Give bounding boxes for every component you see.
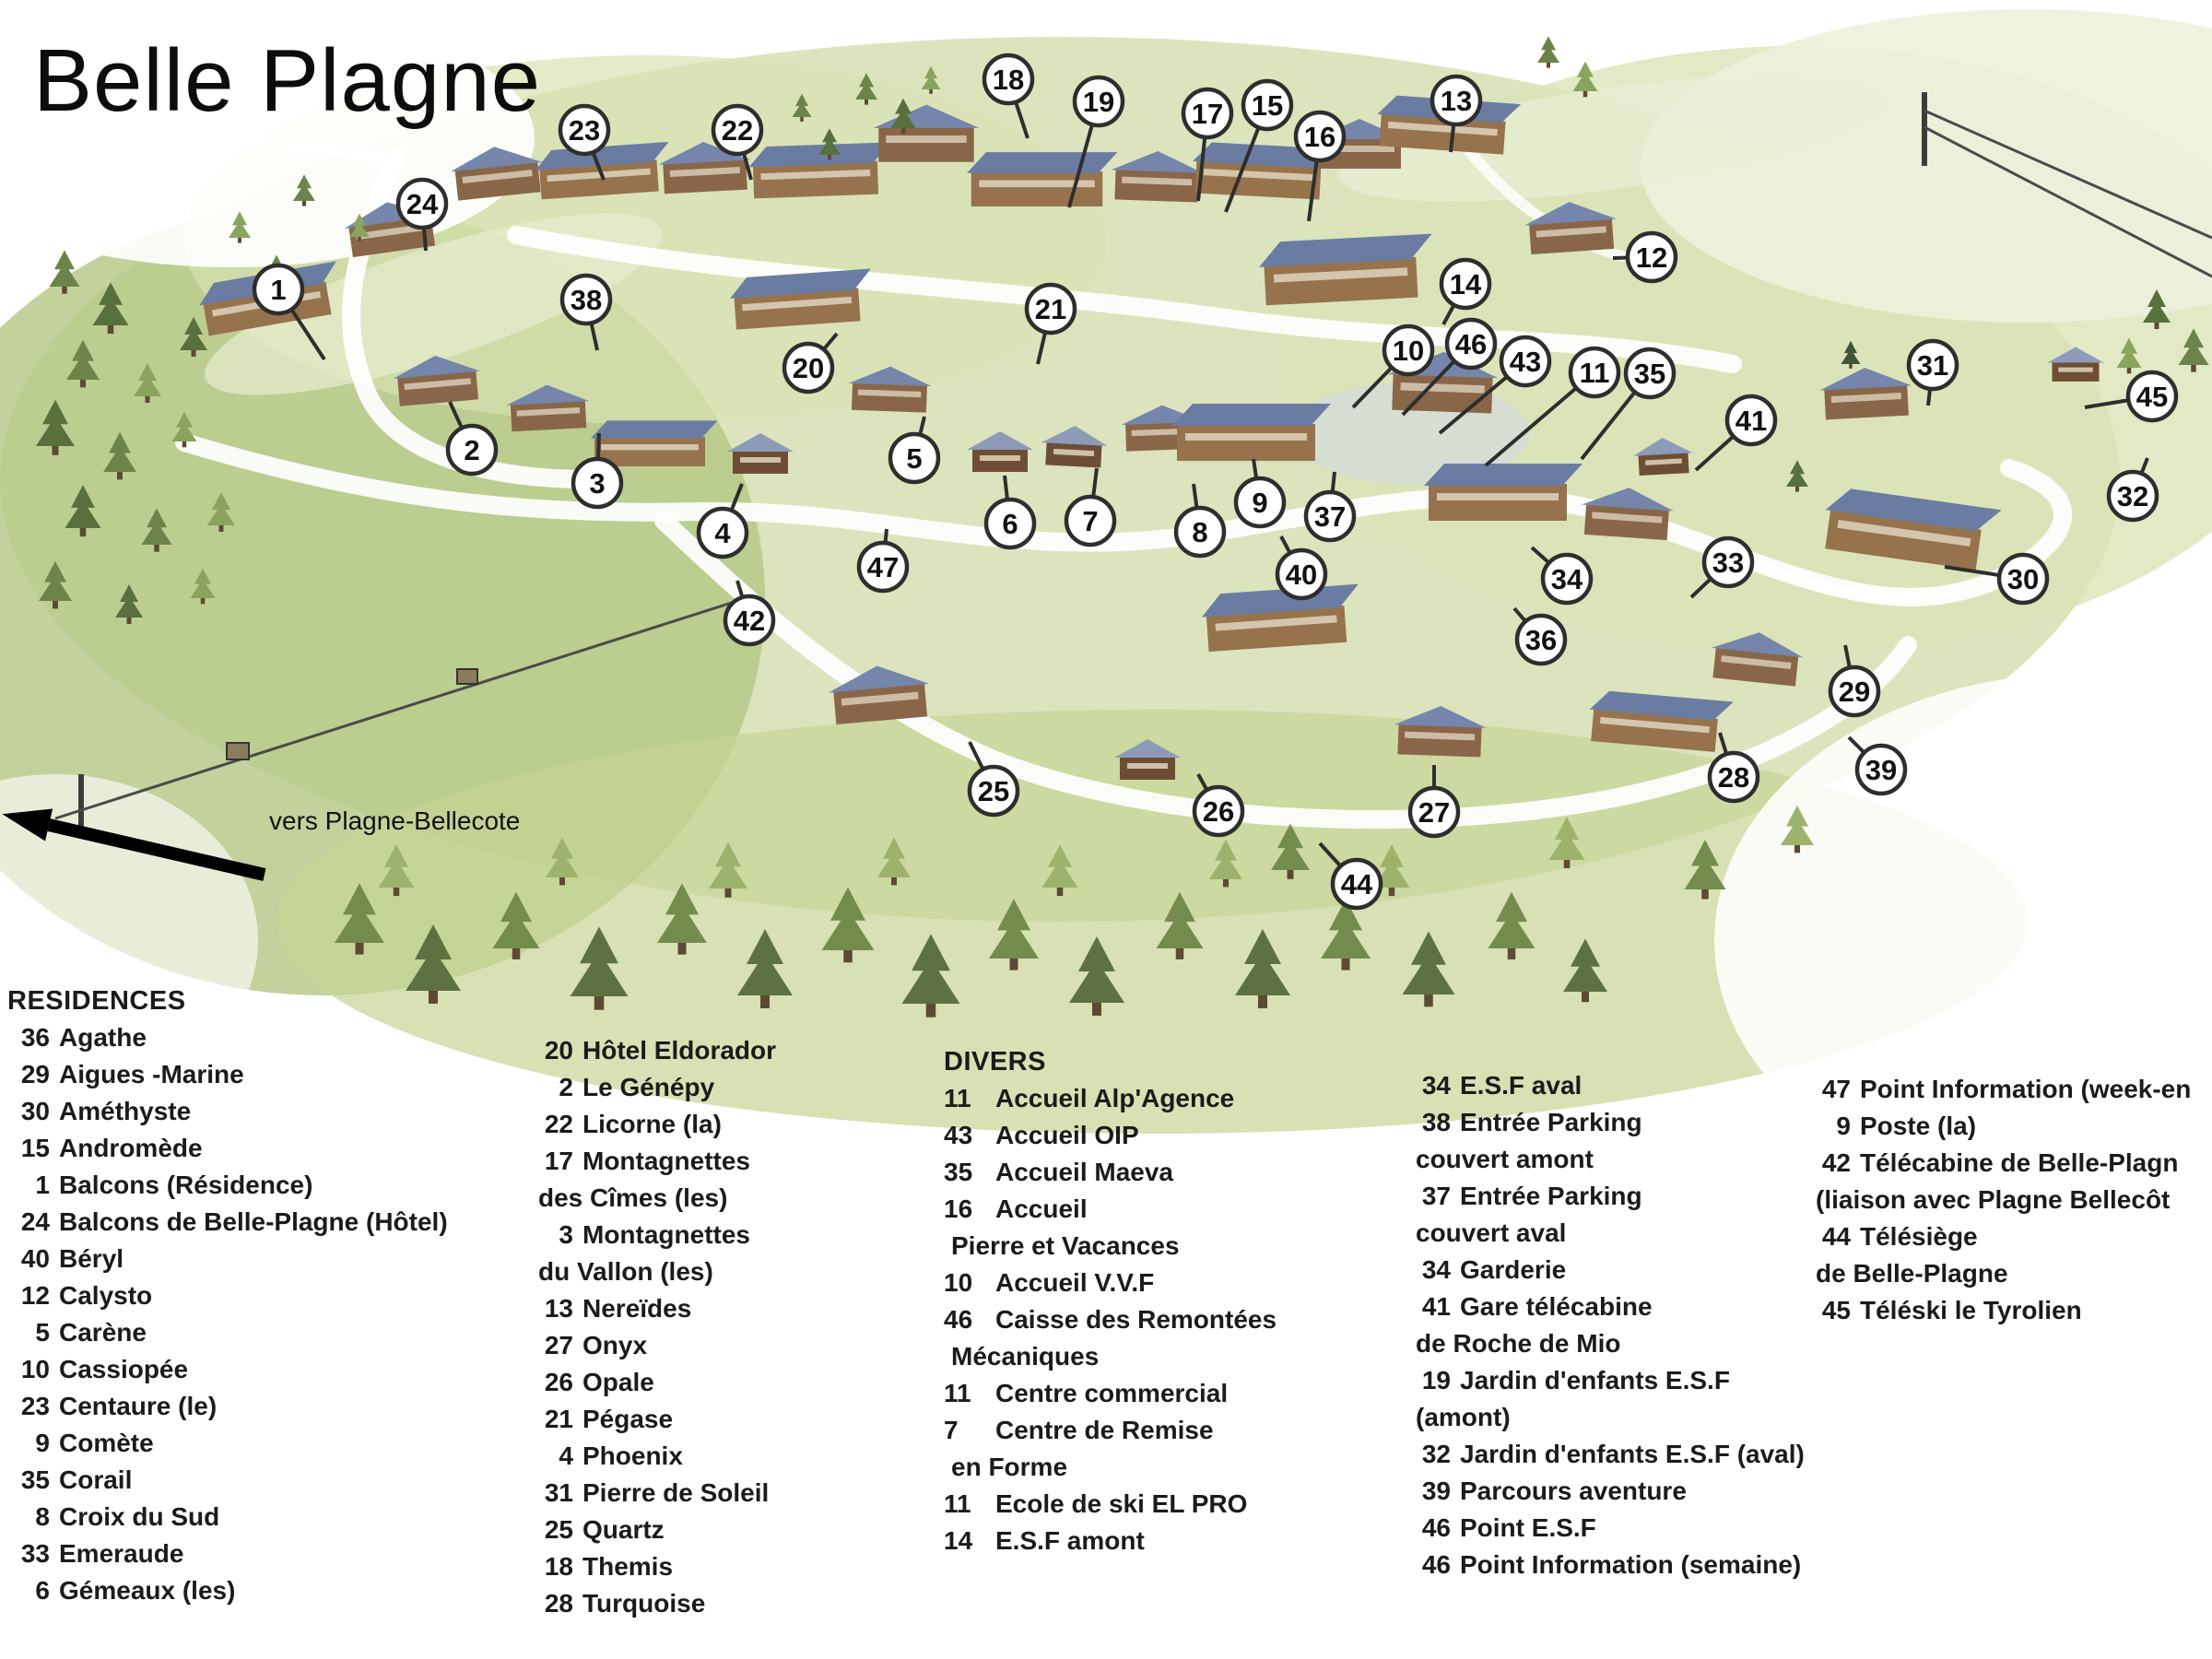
legend-item-label: Télécabine de Belle-Plagn [1860,1145,2212,1182]
legend-item: couvert amont [1408,1141,1841,1178]
legend-item: Pierre et Vacances [944,1228,1405,1265]
legend-item-number: 4 [531,1438,582,1475]
legend-item: 10Cassiopée [7,1351,524,1388]
legend-item-number: 47 [1808,1071,1860,1108]
legend-item-label: Croix du Sud [59,1499,524,1535]
legend-item: 45Téléski le Tyrolien [1808,1292,2212,1329]
legend-item: 28Turquoise [531,1585,941,1622]
legend-item: 15Andromède [7,1130,524,1167]
legend-item-label: Accueil Alp'Agence [995,1080,1405,1117]
legend-item-number: 25 [531,1512,582,1548]
legend-item-number: 32 [1408,1436,1460,1473]
legend-item: 22Licorne (la) [531,1106,941,1143]
legend-item-label: Andromède [59,1130,524,1167]
legend-item-number: 9 [1808,1108,1860,1145]
legend-item-label: Aigues -Marine [59,1056,524,1093]
legend-item-number: 8 [7,1499,59,1535]
legend-item-number: 42 [1808,1145,1860,1182]
legend-item: du Vallon (les) [531,1253,941,1290]
legend-item-number: 46 [944,1301,995,1338]
legend-column-divers: DIVERS 11Accueil Alp'Agence43Accueil OIP… [944,1043,1405,1559]
marker-number: 4 [714,517,731,549]
legend-item: en Forme [944,1449,1405,1486]
legend-list-residences: 36Agathe29Aigues -Marine30Améthyste15And… [7,1019,524,1609]
legend-item-label: Balcons de Belle-Plagne (Hôtel) [59,1204,524,1241]
legend-item: 29Aigues -Marine [7,1056,524,1093]
legend-item-label: Themis [582,1548,941,1585]
legend-item-label: Cassiopée [59,1351,524,1388]
legend-item-label: couvert aval [1408,1215,1841,1252]
arrow-label: vers Plagne-Bellecote [269,806,520,835]
legend-item: 37Entrée Parking [1408,1178,1841,1215]
legend-item-label: Gare télécabine [1460,1288,1841,1325]
marker-number: 19 [1083,86,1114,118]
legend-item-label: Garderie [1460,1252,1841,1288]
marker-number: 13 [1441,85,1472,117]
legend-item: 20Hôtel Eldorador [531,1032,941,1069]
legend-item: 23Centaure (le) [7,1388,524,1425]
legend-item-label: Pierre et Vacances [944,1228,1405,1265]
legend-item-number: 10 [944,1265,995,1301]
marker-number: 44 [1341,868,1373,900]
legend-list-divers-2: 34E.S.F aval38Entrée Parkingcouvert amon… [1408,1067,1841,1583]
legend-item-number: 39 [1408,1473,1460,1510]
legend-item-label: Téléski le Tyrolien [1860,1292,2212,1329]
marker-number: 38 [571,284,602,316]
marker-number: 12 [1636,241,1667,274]
legend-item-number: 41 [1408,1288,1460,1325]
legend-item-number: 11 [944,1080,995,1117]
marker-number: 18 [993,64,1024,96]
legend-item: 27Onyx [531,1327,941,1364]
legend-item-number: 7 [944,1412,995,1449]
marker-number: 32 [2117,480,2148,512]
legend-item-number: 31 [531,1475,582,1512]
legend-item-number: 38 [1408,1104,1460,1141]
legend-item: 21Pégase [531,1401,941,1438]
legend-item-label: Béryl [59,1241,524,1277]
legend-item-label: Montagnettes [582,1217,941,1253]
marker-number: 17 [1192,98,1223,130]
legend-item: 33Emeraude [7,1535,524,1572]
legend-list-residences-2: 20Hôtel Eldorador2Le Génépy22Licorne (la… [531,1032,941,1622]
marker-number: 45 [2136,381,2168,413]
legend-item-label: Nereïdes [582,1290,941,1327]
marker-number: 5 [906,442,922,475]
marker-number: 30 [2007,563,2039,595]
legend-item-label: Quartz [582,1512,941,1548]
legend-item-number: 17 [531,1143,582,1180]
legend-item-label: Point Information (semaine) [1460,1547,1841,1583]
marker-number: 25 [978,775,1009,807]
legend-item-number: 12 [7,1277,59,1314]
legend-item: 11Ecole de ski EL PRO [944,1486,1405,1523]
legend-item-number: 26 [531,1364,582,1401]
marker-number: 23 [569,114,600,147]
marker-number: 42 [734,605,765,637]
legend-column-divers-3: 47Point Information (week-en9Poste (la)4… [1808,1071,2212,1329]
legend-item: 18Themis [531,1548,941,1585]
legend-item-label: de Roche de Mio [1408,1325,1841,1362]
legend-header-divers: DIVERS [944,1043,1405,1080]
legend-item: 5Carène [7,1314,524,1351]
legend-item: des Cîmes (les) [531,1180,941,1217]
legend-item-number: 9 [7,1425,59,1462]
legend-item-label: couvert amont [1408,1141,1841,1178]
marker-number: 40 [1286,559,1317,591]
marker-number: 28 [1718,761,1749,794]
legend-item-number: 18 [531,1548,582,1585]
legend-item-label: Entrée Parking [1460,1178,1841,1215]
marker-number: 26 [1203,795,1234,828]
marker-number: 43 [1510,346,1541,378]
legend-item-label: du Vallon (les) [531,1253,941,1290]
legend-item: 31Pierre de Soleil [531,1475,941,1512]
legend-item-label: (liaison avec Plagne Bellecôt [1808,1182,2212,1218]
legend-item: 46Caisse des Remontées [944,1301,1405,1338]
legend-column-residences-2: 20Hôtel Eldorador2Le Génépy22Licorne (la… [531,1032,941,1622]
legend-item: Mécaniques [944,1338,1405,1375]
legend-item-number: 36 [7,1019,59,1056]
legend-item-label: Ecole de ski EL PRO [995,1486,1405,1523]
legend-item-label: Opale [582,1364,941,1401]
legend-item-label: Centre commercial [995,1375,1405,1412]
legend-list-divers-3: 47Point Information (week-en9Poste (la)4… [1808,1071,2212,1329]
legend-item: 9Poste (la) [1808,1108,2212,1145]
marker-number: 36 [1525,624,1557,656]
legend-item: 1Balcons (Résidence) [7,1167,524,1204]
legend-item-number: 46 [1408,1510,1460,1547]
legend-item: 17Montagnettes [531,1143,941,1180]
marker-number: 15 [1252,89,1283,122]
legend-item: 35Accueil Maeva [944,1154,1405,1191]
legend-item: 46Point E.S.F [1408,1510,1841,1547]
legend-item: 12Calysto [7,1277,524,1314]
legend-item-label: Turquoise [582,1585,941,1622]
legend-item-number: 43 [944,1117,995,1154]
legend-item-label: de Belle-Plagne [1808,1255,2212,1292]
legend-item: 34Garderie [1408,1252,1841,1288]
legend-item: 2Le Génépy [531,1069,941,1106]
legend-item: 38Entrée Parking [1408,1104,1841,1141]
legend-item-label: E.S.F aval [1460,1067,1841,1104]
legend-item-number: 35 [7,1462,59,1499]
marker-number: 27 [1418,796,1450,829]
legend-item-label: Gémeaux (les) [59,1572,524,1609]
legend-item-number: 21 [531,1401,582,1438]
legend-item-number: 29 [7,1056,59,1093]
legend-column-divers-2: 34E.S.F aval38Entrée Parkingcouvert amon… [1408,1067,1841,1583]
marker-number: 2 [464,434,479,466]
legend-item: 40Béryl [7,1241,524,1277]
marker-number: 41 [1735,405,1767,437]
legend-item-label: Accueil [995,1191,1405,1228]
legend-item-number: 1 [7,1167,59,1204]
legend-item: 8Croix du Sud [7,1499,524,1535]
legend-item: 25Quartz [531,1512,941,1548]
legend-item: 24Balcons de Belle-Plagne (Hôtel) [7,1204,524,1241]
marker-number: 10 [1393,335,1424,367]
legend-item-number: 11 [944,1486,995,1523]
legend-item-number: 28 [531,1585,582,1622]
legend-item: 14E.S.F amont [944,1523,1405,1559]
legend-item: 41Gare télécabine [1408,1288,1841,1325]
legend-item-label: Accueil V.V.F [995,1265,1405,1301]
marker-number: 34 [1551,563,1583,595]
legend-item: 16Accueil [944,1191,1405,1228]
legend-item-number: 20 [531,1032,582,1069]
marker-number: 8 [1192,516,1207,548]
legend-item-label: Onyx [582,1327,941,1364]
marker-number: 3 [589,467,605,500]
legend-item-number: 14 [944,1523,995,1559]
legend-item-label: Licorne (la) [582,1106,941,1143]
legend-item-label: Jardin d'enfants E.S.F [1460,1362,1841,1399]
legend-item-number: 35 [944,1154,995,1191]
legend-item-number: 23 [7,1388,59,1425]
marker-number: 35 [1634,358,1665,390]
legend-item-label: E.S.F amont [995,1523,1405,1559]
marker-number: 20 [793,352,824,384]
legend-item: 44Télésiège [1808,1218,2212,1255]
legend-item-label: Parcours aventure [1460,1473,1841,1510]
legend-item-number: 13 [531,1290,582,1327]
legend-item: de Roche de Mio [1408,1325,1841,1362]
legend-item-label: Caisse des Remontées [995,1301,1405,1338]
legend-item-number: 10 [7,1351,59,1388]
legend-item-label: Centre de Remise [995,1412,1405,1449]
marker-number: 1 [270,274,286,306]
marker-number: 31 [1917,349,1948,382]
legend-item-label: Pierre de Soleil [582,1475,941,1512]
legend-item: 47Point Information (week-en [1808,1071,2212,1108]
legend-item: 13Nereïdes [531,1290,941,1327]
legend-item-label: des Cîmes (les) [531,1180,941,1217]
legend-item-label: Poste (la) [1860,1108,2212,1145]
gondola-cabin-icon [227,743,249,759]
legend-item: 4Phoenix [531,1438,941,1475]
marker-number: 37 [1314,500,1346,533]
legend-item-number: 30 [7,1093,59,1130]
marker-number: 21 [1035,293,1066,325]
marker-number: 46 [1455,328,1487,360]
legend-item: (amont) [1408,1399,1841,1436]
legend-item-number: 34 [1408,1252,1460,1288]
legend-item: 34E.S.F aval [1408,1067,1841,1104]
gondola-cabin-icon [457,669,477,684]
legend-item: 32Jardin d'enfants E.S.F (aval) [1408,1436,1841,1473]
legend-item-label: Point Information (week-en [1860,1071,2212,1108]
legend-item-label: Balcons (Résidence) [59,1167,524,1204]
legend-item: 9Comète [7,1425,524,1462]
legend-item: 3Montagnettes [531,1217,941,1253]
legend-item: couvert aval [1408,1215,1841,1252]
legend-header-residences: RESIDENCES [7,982,524,1019]
legend-item-number: 6 [7,1572,59,1609]
legend-item: 30Améthyste [7,1093,524,1130]
legend-item: 35Corail [7,1462,524,1499]
legend-item-number: 34 [1408,1067,1460,1104]
legend-item-label: Mécaniques [944,1338,1405,1375]
legend-item: 43Accueil OIP [944,1117,1405,1154]
legend-item-number: 3 [531,1217,582,1253]
legend-item-label: Pégase [582,1401,941,1438]
legend-item-label: Agathe [59,1019,524,1056]
marker-number: 24 [406,188,439,220]
page-title: Belle Plagne [33,31,541,130]
legend-item-label: Montagnettes [582,1143,941,1180]
legend-item: 39Parcours aventure [1408,1473,1841,1510]
marker-number: 7 [1082,505,1098,537]
legend-item-label: Entrée Parking [1460,1104,1841,1141]
legend-item: 46Point Information (semaine) [1408,1547,1841,1583]
legend-item-label: Accueil OIP [995,1117,1405,1154]
legend-item-label: Centaure (le) [59,1388,524,1425]
legend-item-label: Hôtel Eldorador [582,1032,941,1069]
legend-item-number: 46 [1408,1547,1460,1583]
marker-number: 14 [1450,268,1482,300]
legend-item-number: 15 [7,1130,59,1167]
legend-item-label: Améthyste [59,1093,524,1130]
marker-number: 9 [1252,487,1267,519]
legend-item-number: 24 [7,1204,59,1241]
legend-item-label: Le Génépy [582,1069,941,1106]
legend-item: 7Centre de Remise [944,1412,1405,1449]
legend-item: 26Opale [531,1364,941,1401]
legend-item: 10Accueil V.V.F [944,1265,1405,1301]
legend-item: 6Gémeaux (les) [7,1572,524,1609]
legend-item-number: 40 [7,1241,59,1277]
legend-item-label: Point E.S.F [1460,1510,1841,1547]
legend-item-label: Jardin d'enfants E.S.F (aval) [1460,1436,1841,1473]
legend-item-label: Comète [59,1425,524,1462]
legend-item: 11Centre commercial [944,1375,1405,1412]
marker-number: 6 [1002,508,1018,540]
legend-item-label: Emeraude [59,1535,524,1572]
marker-number: 29 [1839,676,1870,708]
legend-list-divers: 11Accueil Alp'Agence43Accueil OIP35Accue… [944,1080,1405,1559]
legend-item: 42Télécabine de Belle-Plagn [1808,1145,2212,1182]
marker-number: 39 [1865,754,1897,786]
legend-item-label: Accueil Maeva [995,1154,1405,1191]
legend-item: de Belle-Plagne [1808,1255,2212,1292]
legend-item-number: 37 [1408,1178,1460,1215]
legend-item-label: Télésiège [1860,1218,2212,1255]
legend-item-label: en Forme [944,1449,1405,1486]
legend-item-label: Corail [59,1462,524,1499]
belle-plagne-map-page: { "title": "Belle Plagne", "map": { "arr… [0,0,2212,1659]
marker-number: 22 [722,114,753,147]
legend-item-number: 33 [7,1535,59,1572]
legend-item-label: (amont) [1408,1399,1841,1436]
marker-number: 11 [1580,357,1610,389]
legend-item-number: 5 [7,1314,59,1351]
legend-item-number: 2 [531,1069,582,1106]
legend-item-label: Carène [59,1314,524,1351]
legend-column-residences: RESIDENCES 36Agathe29Aigues -Marine30Amé… [7,982,524,1609]
marker-number: 16 [1304,121,1335,153]
legend-item-number: 45 [1808,1292,1860,1329]
legend-item-number: 44 [1808,1218,1860,1255]
marker-number: 33 [1712,547,1744,579]
legend-item: 36Agathe [7,1019,524,1056]
legend-item-label: Phoenix [582,1438,941,1475]
legend-item: 19Jardin d'enfants E.S.F [1408,1362,1841,1399]
legend-item-number: 27 [531,1327,582,1364]
marker-number: 47 [867,551,899,583]
legend-item: 11Accueil Alp'Agence [944,1080,1405,1117]
legend-item: (liaison avec Plagne Bellecôt [1808,1182,2212,1218]
legend-item-number: 22 [531,1106,582,1143]
legend-item-number: 19 [1408,1362,1460,1399]
legend-item-number: 16 [944,1191,995,1228]
legend-item-label: Calysto [59,1277,524,1314]
legend-item-number: 11 [944,1375,995,1412]
